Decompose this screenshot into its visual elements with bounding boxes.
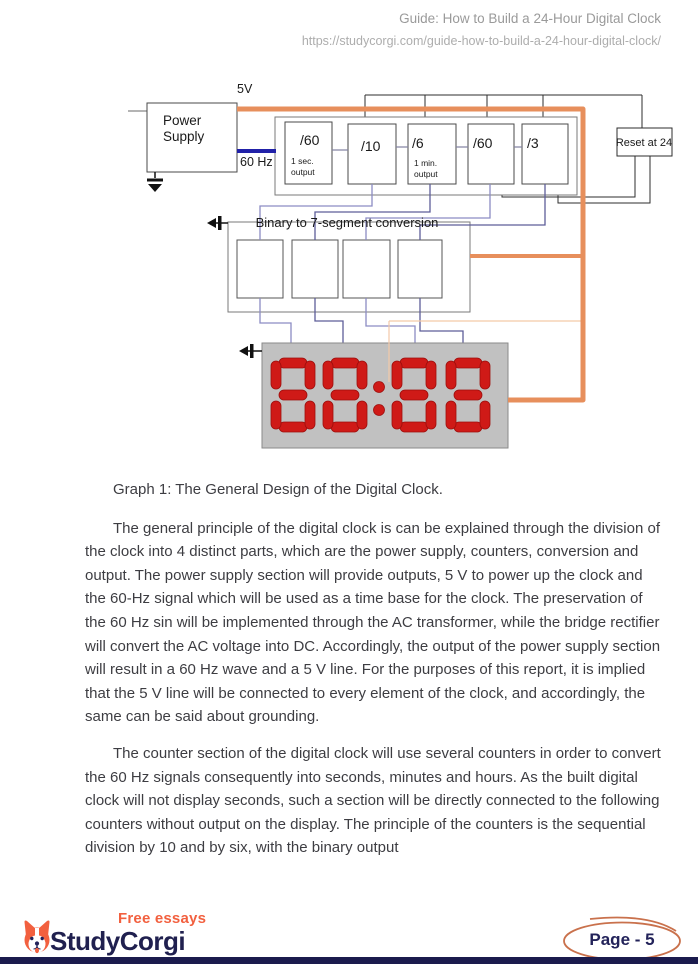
paragraph-2: The counter section of the digital clock… [85,742,663,860]
label-counter-6-sub1: 1 min. [414,158,437,168]
label-counter-60a: /60 [300,132,320,148]
label-60hz: 60 Hz [240,155,273,169]
colon-dot-bottom [374,405,385,416]
label-conversion: Binary to 7-segment conversion [256,215,439,230]
label-counter-3: /3 [527,135,539,151]
label-counter-6: /6 [412,135,424,151]
label-counter-60a-sub2: output [291,167,315,177]
label-reset: Reset at 24 [616,137,672,149]
label-supply: Supply [163,129,205,144]
decoder-box-4 [398,240,442,298]
label-power: Power [163,113,202,128]
label-counter-10: /10 [361,138,381,154]
free-essays-tagline: Free essays [118,910,206,927]
article-body: Graph 1: The General Design of the Digit… [85,478,663,873]
arrow-terminal-display-icon [239,344,262,358]
circuit-diagram: 5V 60 Hz Power Supply /60 1 sec. output … [0,0,698,470]
decoder-box-2 [292,240,338,298]
page-number-badge: Page - 5 [563,930,681,950]
paragraph-1: The general principle of the digital clo… [85,517,663,729]
ground-icon [147,172,163,192]
counter-box-div10 [348,124,396,184]
colon-dot-top [374,382,385,393]
corgi-logo-icon [25,920,50,953]
footer-bar [0,957,698,964]
label-counter-60a-sub1: 1 sec. [291,156,314,166]
label-5v: 5V [237,82,253,96]
counter-box-div60-min [468,124,514,184]
arrow-terminal-conversion-icon [207,216,228,230]
label-counter-6-sub2: output [414,169,438,179]
figure-caption: Graph 1: The General Design of the Digit… [85,478,663,502]
decoder-box-1 [237,240,283,298]
decoder-box-3 [343,240,390,298]
document-page: Guide: How to Build a 24-Hour Digital Cl… [0,0,698,964]
counter-box-div3 [522,124,568,184]
label-counter-60b: /60 [473,135,493,151]
brand-wordmark: StudyCorgi [50,926,185,957]
